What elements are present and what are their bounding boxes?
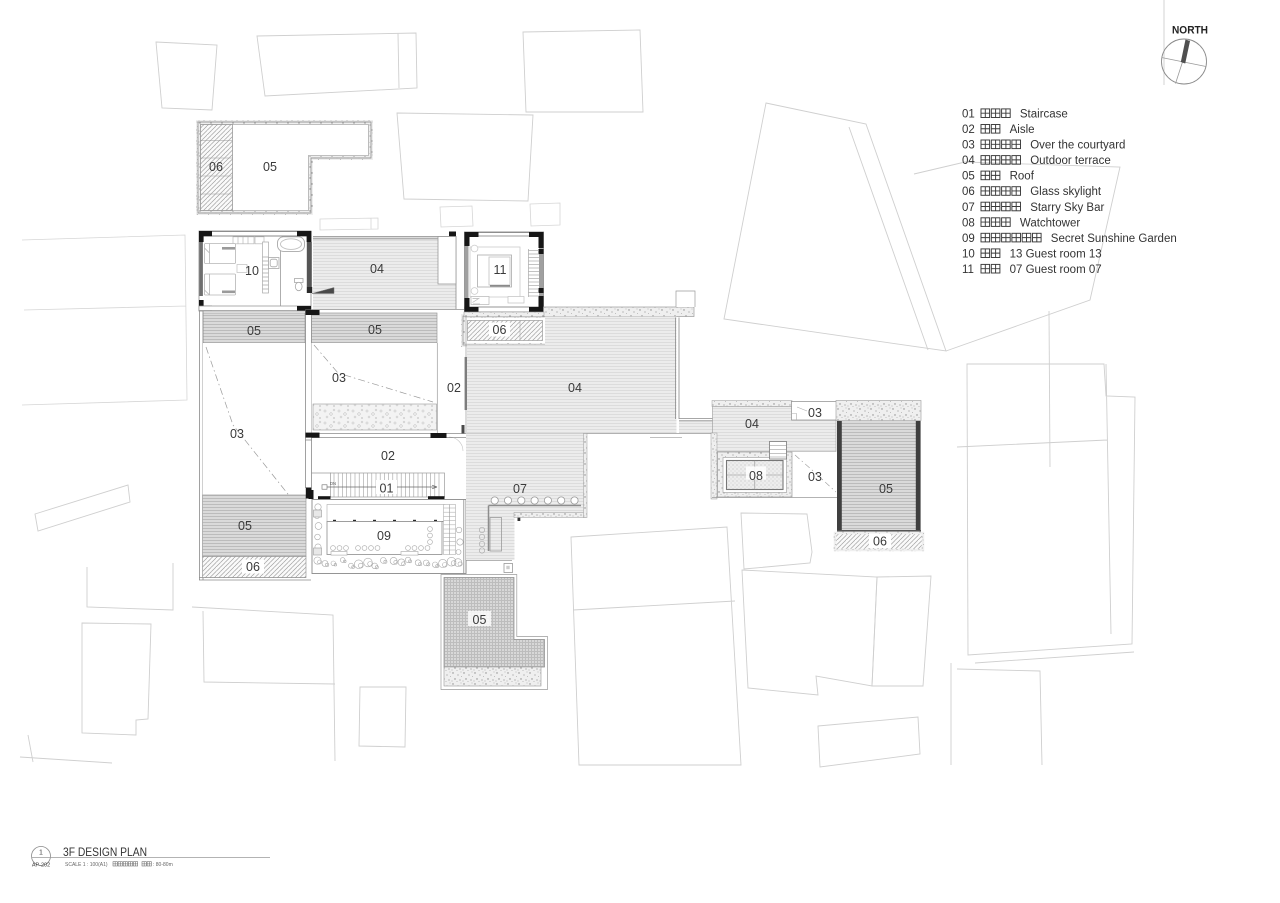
svg-text:Aisle: Aisle (1010, 124, 1035, 136)
svg-text:06: 06 (209, 160, 223, 174)
svg-text:02: 02 (962, 124, 975, 136)
svg-text:03: 03 (808, 406, 822, 420)
svg-text:06: 06 (493, 323, 507, 337)
svg-text:Starry Sky Bar: Starry Sky Bar (1030, 202, 1104, 214)
svg-text:04: 04 (745, 417, 759, 431)
svg-text:04: 04 (370, 262, 384, 276)
svg-text:Secret Sunshine Garden: Secret Sunshine Garden (1051, 233, 1177, 245)
svg-text:05: 05 (263, 160, 277, 174)
svg-text:10: 10 (245, 264, 259, 278)
svg-text:05: 05 (962, 171, 975, 183)
svg-text:02: 02 (447, 381, 461, 395)
svg-text:: 80-80m: : 80-80m (153, 862, 173, 868)
svg-text:07 Guest room 07: 07 Guest room 07 (1010, 264, 1102, 276)
svg-text:06: 06 (246, 560, 260, 574)
svg-text:13 Guest room 13: 13 Guest room 13 (1010, 249, 1102, 261)
svg-text:05: 05 (879, 482, 893, 496)
svg-text:11: 11 (962, 264, 974, 276)
svg-text:06: 06 (873, 535, 887, 549)
svg-text:05: 05 (238, 519, 252, 533)
svg-text:AP-202: AP-202 (32, 863, 50, 869)
svg-text:01: 01 (380, 482, 394, 496)
svg-text:03: 03 (962, 140, 975, 152)
svg-text:SCALE 1 : 100(A1): SCALE 1 : 100(A1) (65, 862, 108, 868)
svg-text:05: 05 (247, 324, 261, 338)
svg-text:09: 09 (962, 233, 975, 245)
svg-text:06: 06 (962, 186, 975, 198)
svg-text:Roof: Roof (1010, 171, 1035, 183)
svg-text:07: 07 (962, 202, 975, 214)
svg-text:02: 02 (381, 449, 395, 463)
svg-text:01: 01 (962, 109, 975, 121)
svg-text:04: 04 (568, 381, 582, 395)
svg-text:05: 05 (473, 613, 487, 627)
svg-text:Outdoor terrace: Outdoor terrace (1030, 155, 1111, 167)
svg-text:11: 11 (494, 263, 507, 277)
svg-text:05: 05 (368, 323, 382, 337)
svg-text:DN: DN (330, 481, 336, 486)
svg-text:04: 04 (962, 155, 975, 167)
svg-text:10: 10 (962, 249, 975, 261)
svg-text:Over the courtyard: Over the courtyard (1030, 140, 1125, 152)
svg-text:07: 07 (513, 482, 527, 496)
svg-text:Glass skylight: Glass skylight (1030, 186, 1102, 198)
svg-text:08: 08 (749, 469, 763, 483)
svg-text:03: 03 (230, 427, 244, 441)
svg-text:03: 03 (332, 371, 346, 385)
svg-text:09: 09 (377, 529, 391, 543)
svg-text:08: 08 (962, 217, 975, 229)
svg-text:NORTH: NORTH (1172, 25, 1208, 37)
svg-text:Staircase: Staircase (1020, 109, 1068, 121)
svg-text:1: 1 (39, 850, 43, 857)
svg-text:Watchtower: Watchtower (1020, 217, 1080, 229)
svg-text:03: 03 (808, 470, 822, 484)
svg-text:3F DESIGN PLAN: 3F DESIGN PLAN (63, 847, 147, 859)
